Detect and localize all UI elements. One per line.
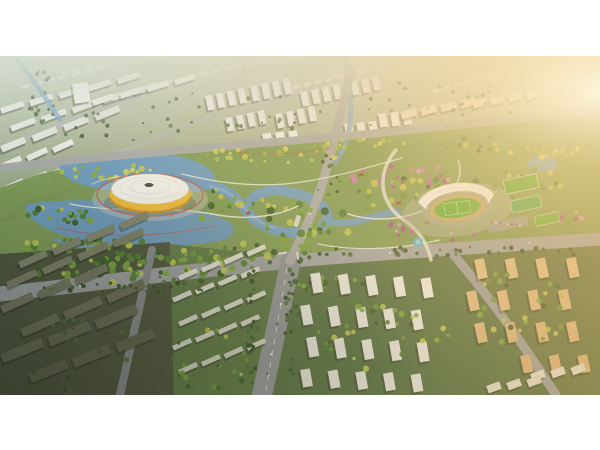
- aerial-render-svg: [0, 56, 600, 395]
- screenshot-canvas: [0, 0, 600, 450]
- shadow-vignette: [0, 56, 600, 395]
- aerial-render-image: [0, 56, 600, 395]
- atmosphere-overlays: [0, 56, 600, 395]
- letterbox-bottom: [0, 395, 600, 450]
- letterbox-top: [0, 0, 600, 56]
